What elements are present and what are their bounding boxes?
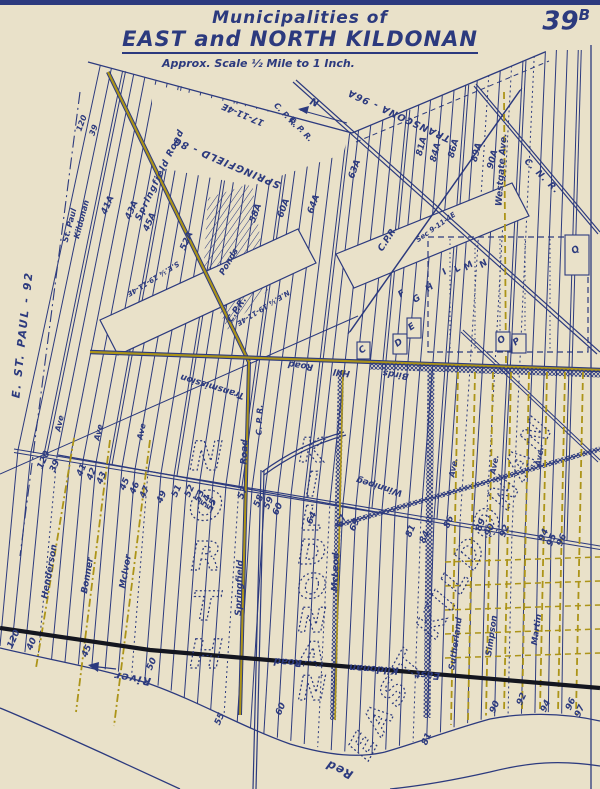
map-canvas: E. ST. PAUL - 92St. PaulKildonanSPRINGFI… xyxy=(0,0,600,789)
sheet-top-border xyxy=(0,0,600,5)
municipality-name-letter: T xyxy=(192,584,222,630)
municipality-name-letter: R xyxy=(191,534,222,580)
sheet-number: 39B xyxy=(542,6,590,37)
map-label: McLeod xyxy=(330,552,341,592)
map-title-line2: EAST and NORTH KILDONAN xyxy=(0,27,600,51)
municipality-name-letter: O xyxy=(189,484,223,530)
scale-note: Approx. Scale ½ Mile to 1 Inch. xyxy=(162,57,355,70)
map-sheet: { "header": { "title_line1": "Municipali… xyxy=(0,0,600,789)
municipality-name-letter: N xyxy=(298,669,326,709)
map-label: Road xyxy=(273,655,303,668)
municipality-name-letter: N xyxy=(189,434,222,480)
map-label: Road xyxy=(240,439,251,465)
map-label: C. P. R. xyxy=(254,404,264,435)
map-title-underlined: EAST and NORTH KILDONAN xyxy=(122,27,478,54)
municipality-name-letter: H xyxy=(189,632,222,678)
sheet-number-main: 39 xyxy=(542,7,578,37)
map-label: Springfield xyxy=(234,559,246,616)
sheet-number-suffix: B xyxy=(579,6,590,24)
map-title-line1: Municipalities of xyxy=(0,8,600,28)
